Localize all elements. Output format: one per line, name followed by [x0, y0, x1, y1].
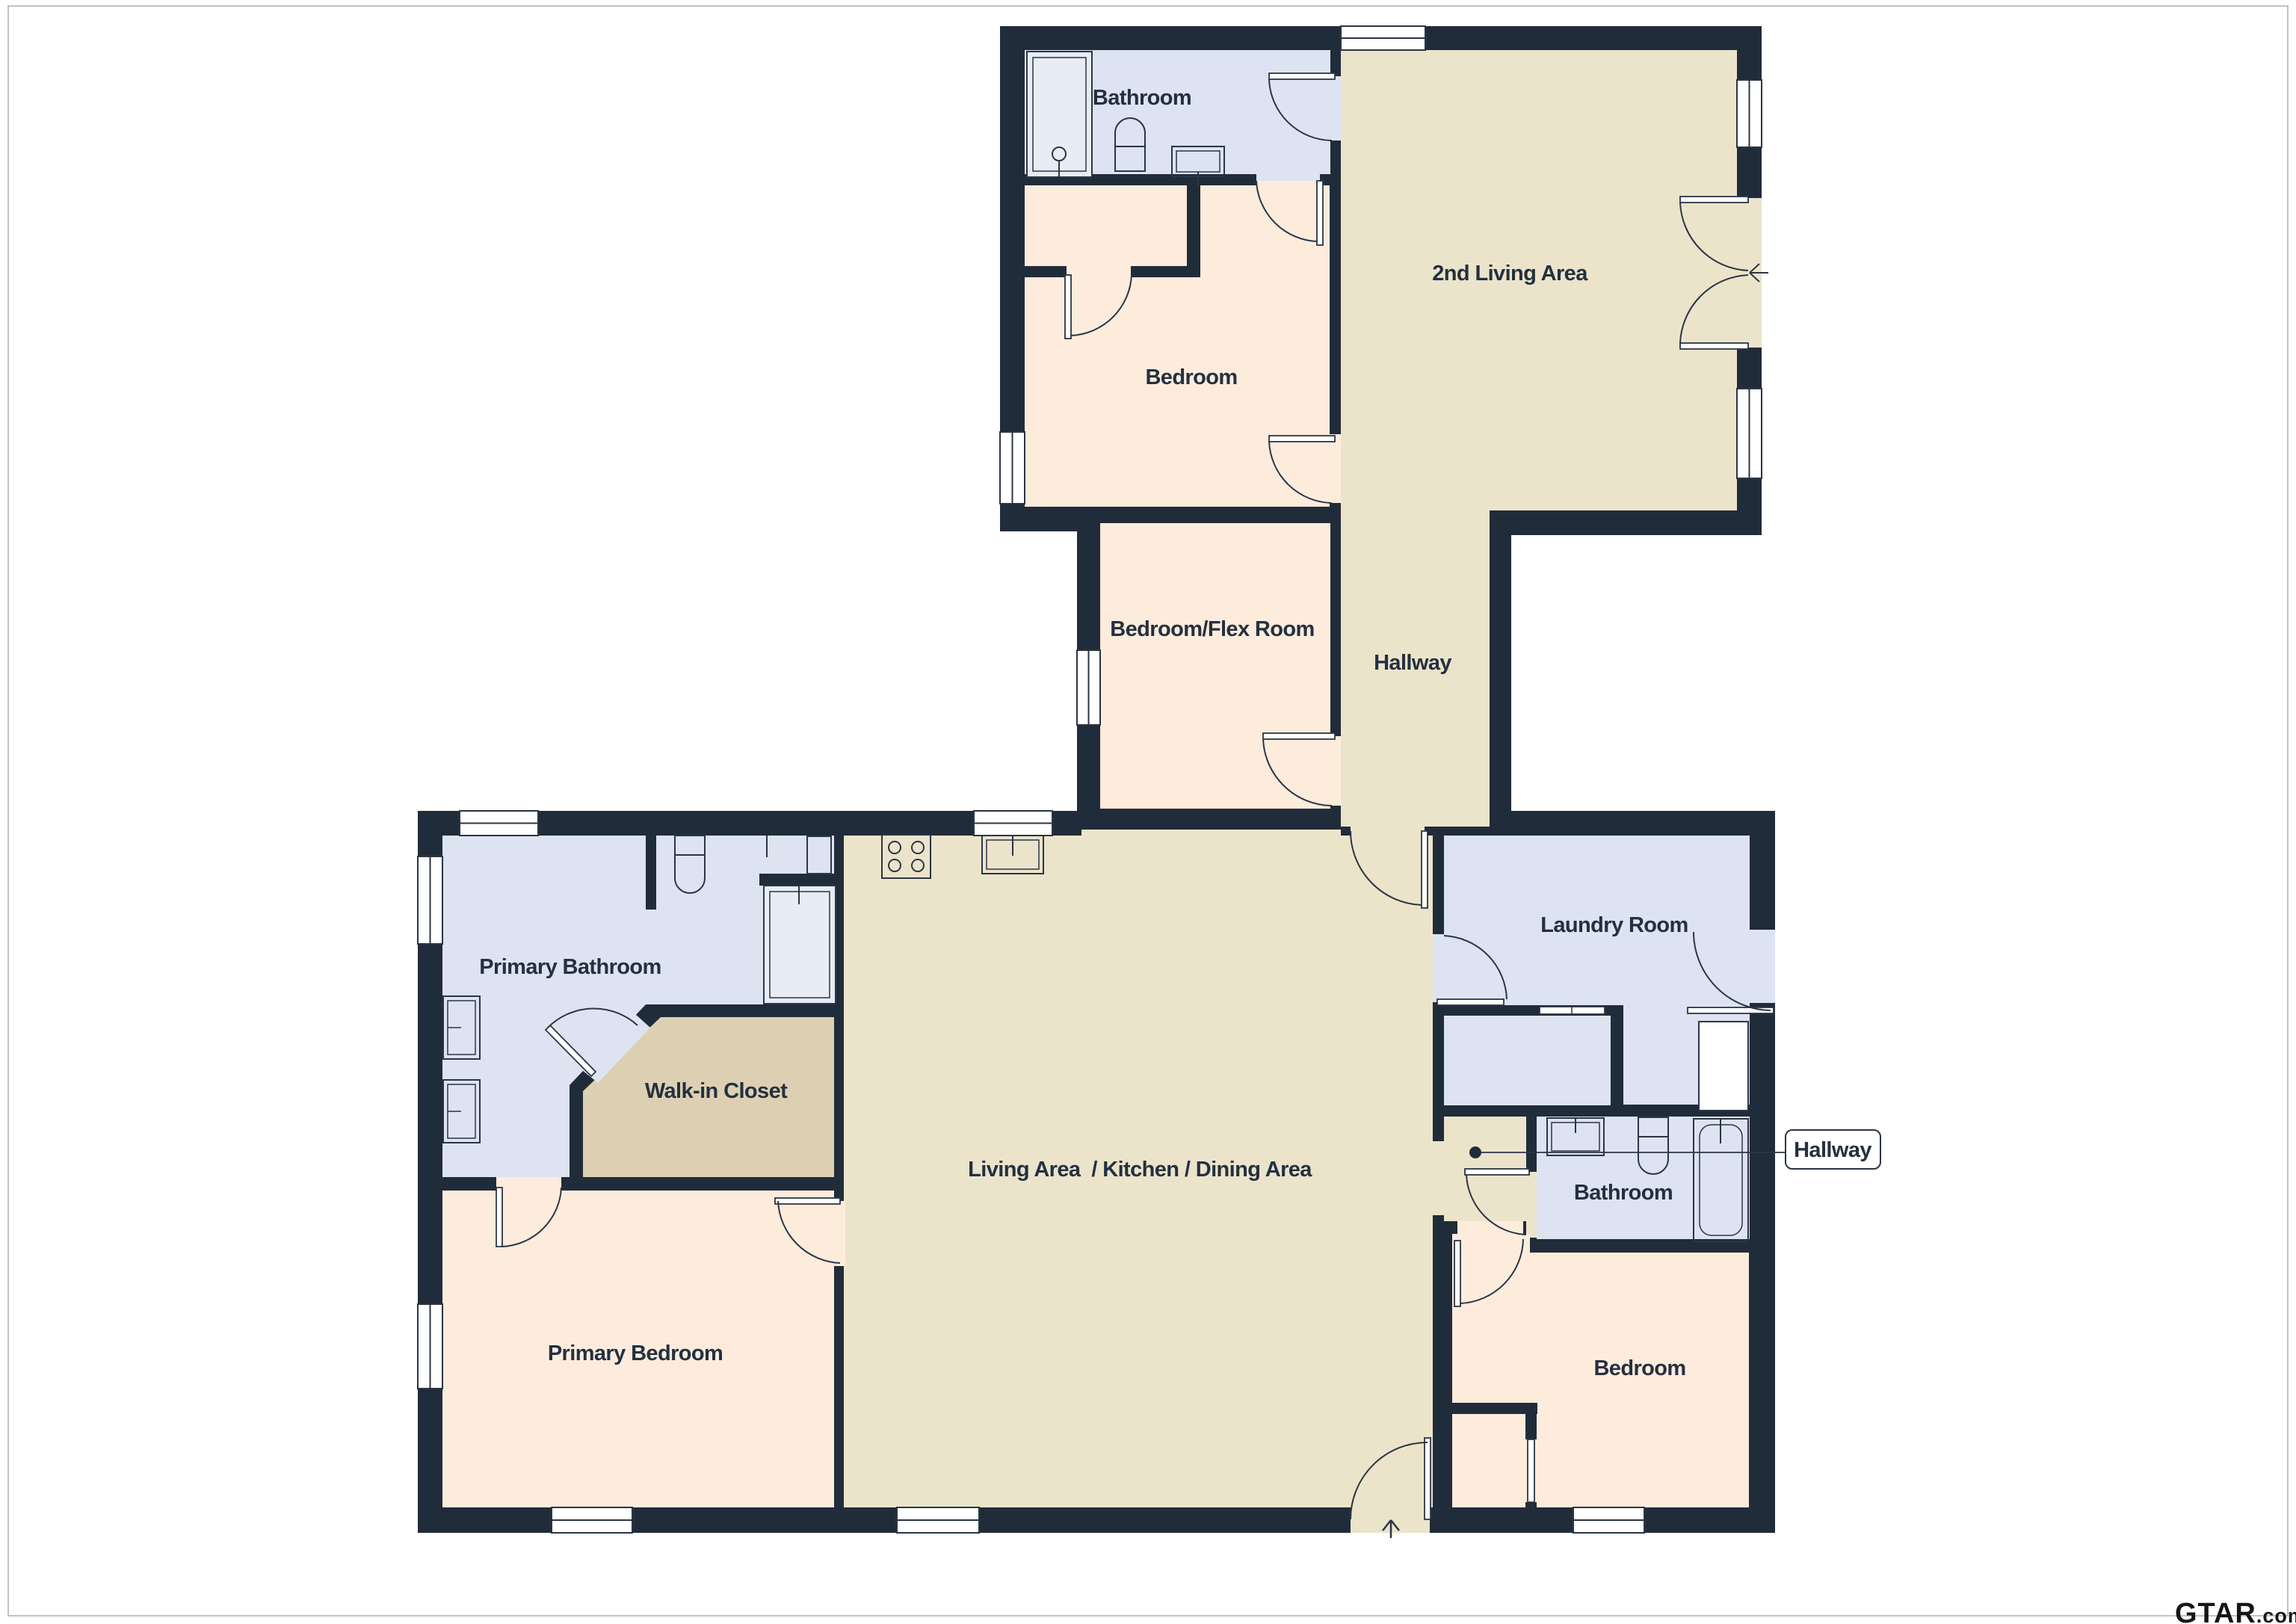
svg-text:Hallway: Hallway	[1374, 651, 1451, 675]
svg-text:Primary Bathroom: Primary Bathroom	[479, 955, 661, 979]
svg-text:Hallway: Hallway	[1794, 1138, 1871, 1162]
svg-text:Bedroom: Bedroom	[1145, 365, 1237, 389]
svg-text:Bathroom: Bathroom	[1574, 1181, 1673, 1205]
svg-text:Bedroom: Bedroom	[1593, 1356, 1685, 1380]
svg-text:Primary Bedroom: Primary Bedroom	[548, 1342, 723, 1365]
svg-text:Bathroom: Bathroom	[1093, 86, 1191, 110]
svg-text:Walk-in Closet: Walk-in Closet	[645, 1079, 788, 1103]
svg-text:Living Area / Kitchen / Dinin: Living Area / Kitchen / Dining Area	[968, 1158, 1312, 1182]
svg-text:Bedroom/Flex Room: Bedroom/Flex Room	[1110, 617, 1314, 641]
svg-text:Laundry Room: Laundry Room	[1540, 913, 1688, 937]
svg-text:2nd Living Area: 2nd Living Area	[1432, 262, 1588, 285]
